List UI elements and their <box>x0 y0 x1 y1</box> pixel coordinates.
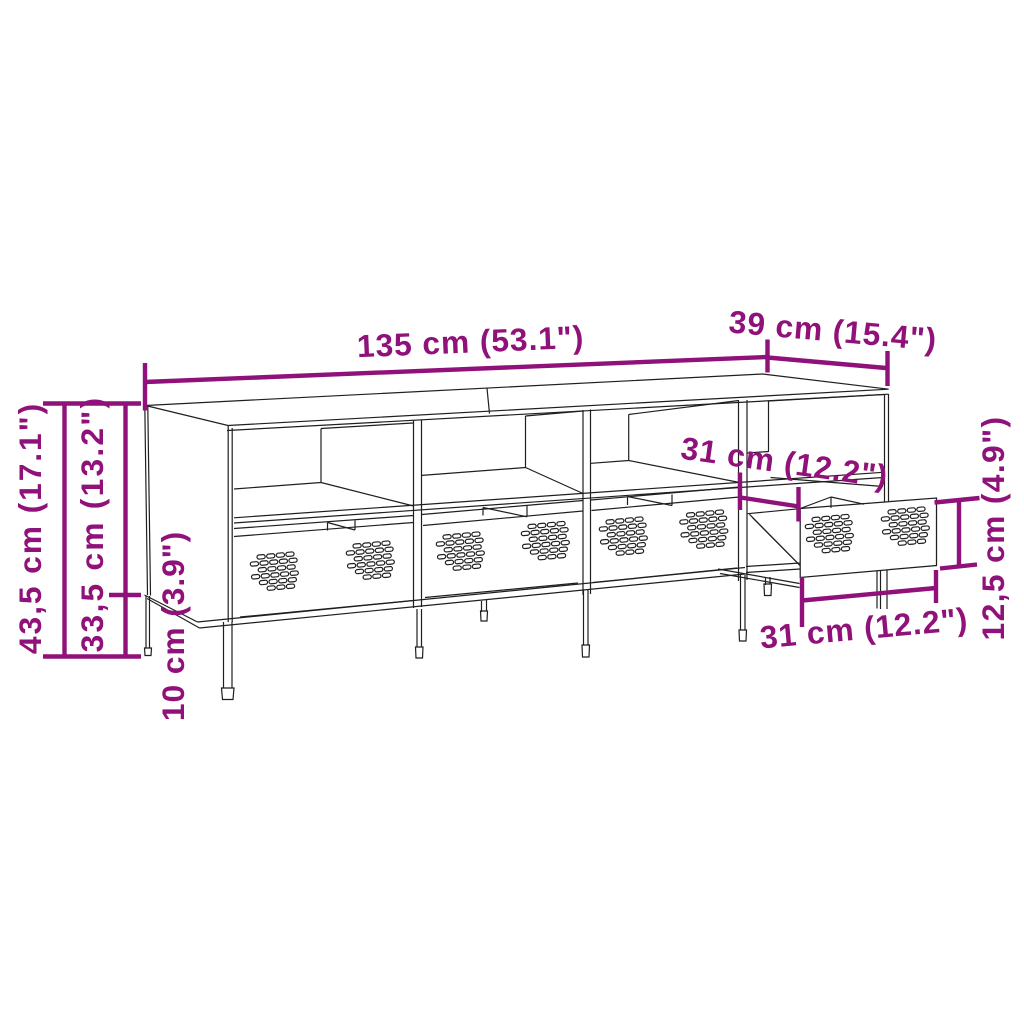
svg-text:33,5 cm (13.2"): 33,5 cm (13.2") <box>74 396 110 653</box>
svg-text:10 cm (3.9"): 10 cm (3.9") <box>155 531 191 721</box>
svg-text:43,5 cm (17.1"): 43,5 cm (17.1") <box>12 402 48 654</box>
svg-text:12,5 cm (4.9"): 12,5 cm (4.9") <box>975 416 1011 641</box>
